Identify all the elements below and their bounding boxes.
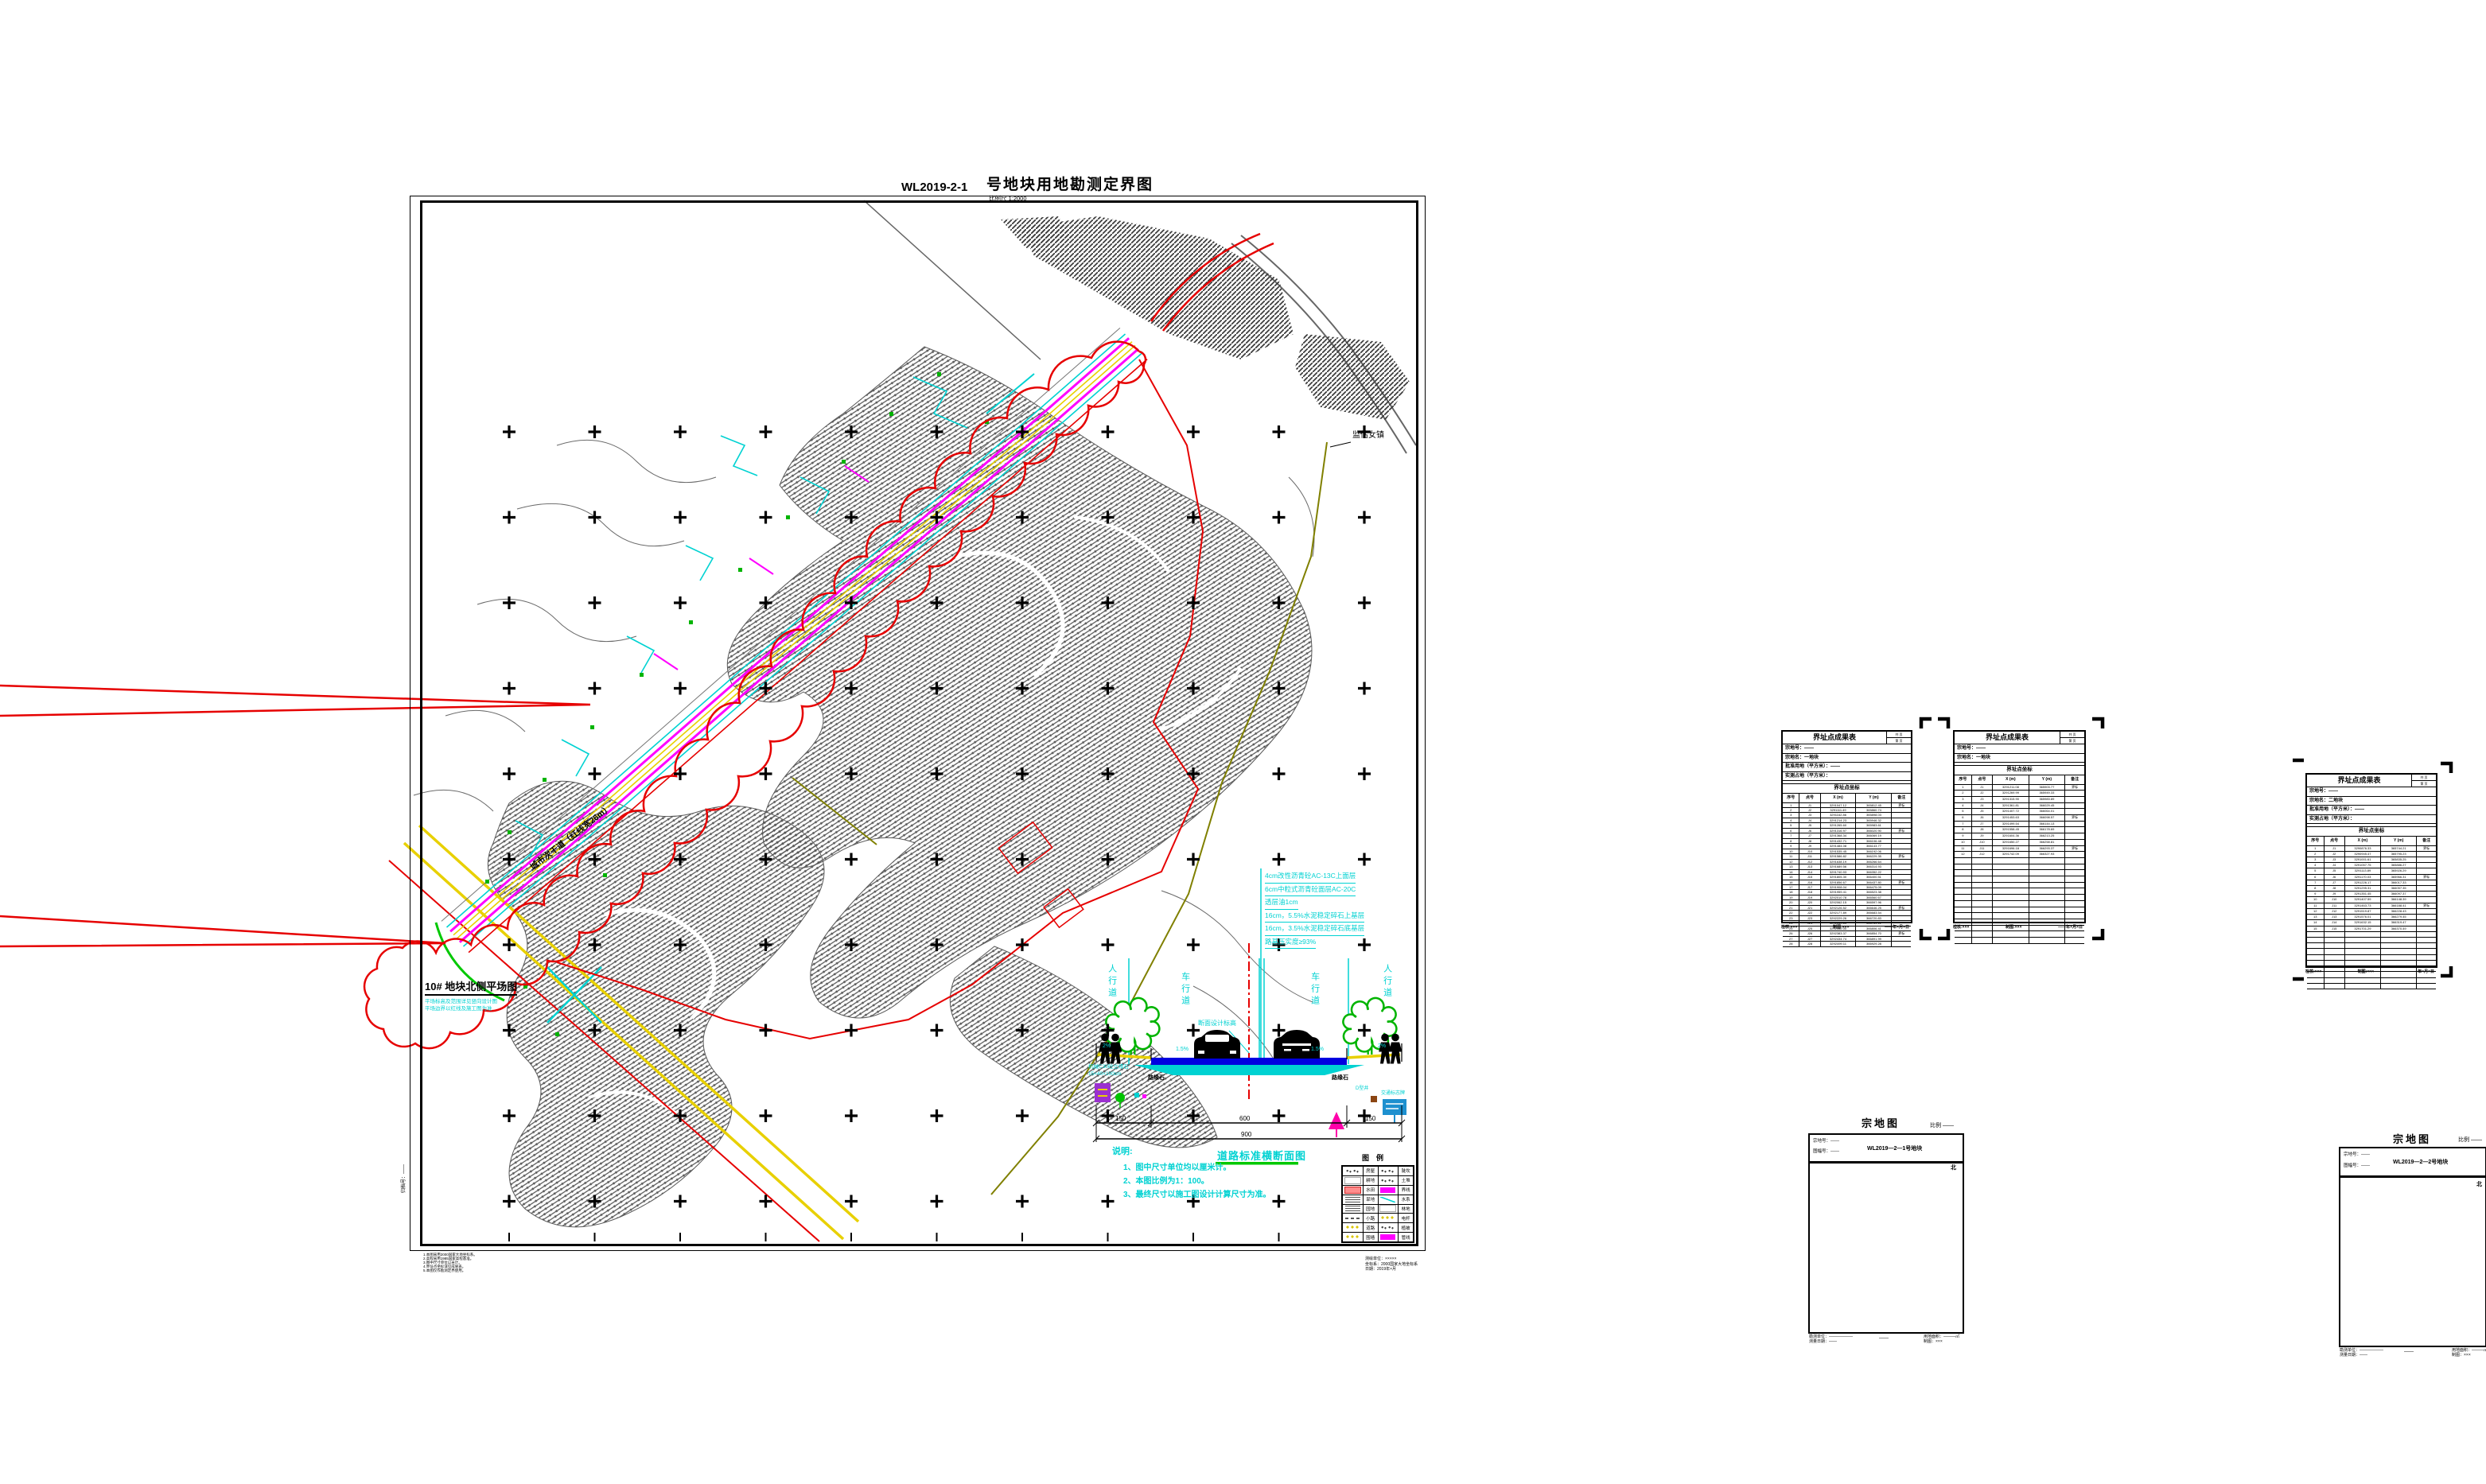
table-row <box>2307 984 2436 989</box>
legend-row: 房屋陡坎 <box>1343 1167 1413 1176</box>
table-row <box>1955 907 2084 914</box>
legend-swatch-white <box>1343 1176 1364 1185</box>
table-row: 15J153291701.29366370.49 <box>2307 927 2436 932</box>
table-row: 8J83291295.31366057.35 <box>2307 886 2436 892</box>
parcel1-footer-right: 用地面积：———㎡制图：××× <box>1924 1334 1959 1344</box>
table-row: 6J63291170.03365966.31界标 <box>2307 875 2436 880</box>
legend-swatch-dots <box>1379 1176 1399 1185</box>
table-info-row: 宗地号：—— <box>1783 744 1911 754</box>
slope-1: 2% <box>1103 1043 1111 1050</box>
curb-note-1: 机械C30砼立缘石 <box>1088 1064 1129 1070</box>
table-row <box>1955 883 2084 889</box>
parcel2-title: 宗地图 <box>2393 1134 2431 1146</box>
table-row <box>1955 858 2084 864</box>
dim-center: 600 <box>1239 1115 1250 1122</box>
legend-label: 旱地 <box>1364 1195 1379 1204</box>
boundary-table-2: 界址点成果表 共 页第 页宗地号：——宗地名：一地块界址点坐标序号点号X (m)… <box>1953 730 2086 923</box>
parcel2-frame: 宗地号：—— 图幅号：—— WL2019—2—2号地块 北 <box>2339 1147 2486 1347</box>
section-notes: 1、图中尺寸单位均以厘米计。2、本图比例为1：100。3、最终尺寸以施工图设计计… <box>1123 1161 1271 1202</box>
table-row: 9J93291351.45366097.37 <box>2307 892 2436 897</box>
plat-subline-2: 平场边界以红线及施工图为准 <box>425 1006 492 1012</box>
parcel2-scale: 比例 —— <box>2458 1137 2482 1144</box>
table-row <box>1955 895 2084 901</box>
legend-swatch-lines <box>1343 1195 1364 1204</box>
plat-subline-1: 平场标高及范围详见竖向设计图 <box>425 999 497 1004</box>
table-row <box>1955 876 2084 883</box>
parcel2-header: 宗地号：—— 图幅号：—— WL2019—2—2号地块 <box>2340 1148 2485 1178</box>
zone-lane-right: 车行道 <box>1309 972 1320 1008</box>
legend-swatch-white <box>1379 1205 1399 1214</box>
table-row <box>2307 978 2436 984</box>
table-row <box>1955 938 2084 944</box>
archive-note: 归档号：—— <box>402 1164 407 1193</box>
table-footer: 检核:×××制图:×××——年×月×日 <box>1953 924 2083 930</box>
legend-label: 房屋 <box>1364 1167 1379 1175</box>
legend-label: 园地 <box>1364 1205 1379 1214</box>
legend-title: 图 例 <box>1362 1154 1383 1162</box>
table-page-box: 共 页第 页 <box>2060 732 2084 744</box>
table-row: 1J13290876.33365744.21界标 <box>2307 846 2436 852</box>
table-row: 2J23291269.99365949.33 <box>1955 791 2084 797</box>
table-row: 9J93291604.36366213.25 <box>1955 833 2084 840</box>
table-row: 1J13291211.08365903.77界标 <box>1955 785 2084 791</box>
curb-label-right: 路缘石 <box>1332 1075 1348 1082</box>
pavement-layers: 4cm改性沥青砼AC-13C上面层 6cm中粒式沥青砼面层AC-20C 透层油1… <box>1265 870 1364 949</box>
table-row <box>1955 870 2084 876</box>
parcel1-frame: 宗地号：—— 图幅号：—— WL2019—2—1号地块 北 <box>1808 1133 1964 1334</box>
table-title: 界址点成果表 <box>1955 732 2060 744</box>
table-info-row: 批准用地（平方米）：—— <box>1783 763 1911 772</box>
table-row: 14J143291632.15366319.47 <box>2307 920 2436 926</box>
table-title: 界址点成果表 <box>1783 732 1886 744</box>
table-info-row: 实测占地（平方米）： <box>2307 815 2436 825</box>
curb-label-left: 路缘石 <box>1148 1075 1165 1082</box>
legend-label: 水田 <box>1364 1186 1379 1195</box>
legend-swatch-pink <box>1343 1186 1364 1195</box>
table-row: 11J113291696.18366293.37界标 <box>1955 846 2084 853</box>
table-row: 4J43291361.81366029.45 <box>1955 803 2084 810</box>
table-row <box>2307 932 2436 938</box>
legend-table: 房屋陡坎耕地土堆水田界线旱地水系园地林地小路电杆道路植被围墙管线 <box>1341 1165 1414 1243</box>
legend-swatch-ydots <box>1343 1233 1364 1241</box>
table-title: 界址点成果表 <box>2307 775 2411 787</box>
legend-swatch-dots <box>1379 1167 1399 1175</box>
table-info-row: 宗地号：—— <box>2307 787 2436 797</box>
parcel1-footer-left: 勘测单位：——————测量日期：—— <box>1809 1334 1853 1344</box>
sheet-subtitle: 比例尺 1:2000 <box>989 196 1027 203</box>
right-item-2: 交通标志牌 <box>1381 1091 1405 1097</box>
table-row <box>1955 913 2084 919</box>
legend-swatch-cyan <box>1379 1195 1399 1204</box>
table-row: 12J123291742.09366327.93 <box>1955 852 2084 858</box>
legend-label: 土堆 <box>1399 1176 1413 1185</box>
legend-swatch-dots <box>1379 1223 1399 1232</box>
parcel1-sheet-no: 图幅号：—— <box>1813 1149 1839 1154</box>
table-info-row: 宗地名：一地块 <box>1783 754 1911 763</box>
town-label: 监估女镇 <box>1352 431 1384 441</box>
boundary-table-1: 界址点成果表 共 页第 页宗地号：——宗地名：一地块批准用地（平方米）：——实测… <box>1781 730 1912 923</box>
legend-row: 耕地土堆 <box>1343 1176 1413 1186</box>
drawing-canvas: WL2019-2-1 号地块用地勘测定界图 比例尺 1:2000 归档号：—— … <box>0 0 2486 1484</box>
table-section-header: 界址点坐标 <box>1955 766 2084 775</box>
table-row: 10J103291650.27366258.81 <box>1955 840 2084 846</box>
parcel2-name: WL2019—2—2号地块 <box>2393 1160 2448 1166</box>
legend-swatch-dots <box>1343 1167 1364 1175</box>
table-row: 28J283292499.11366929.28 <box>1783 942 1911 946</box>
legend-label: 电杆 <box>1399 1214 1413 1222</box>
right-item-1: D型井 <box>1356 1086 1368 1092</box>
frame-bottom-left-notes: 1.本图采用2000国家大地坐标系。2.高程采用1985国家高程基准。 3.图中… <box>423 1253 477 1273</box>
legend-label: 植被 <box>1399 1223 1413 1232</box>
table-row: 10J103291407.59366148.39 <box>2307 897 2436 903</box>
table-row: 13J133291576.01366279.45 <box>2307 915 2436 920</box>
plat-area-label: 10# 地块北侧平场图 <box>425 981 517 996</box>
zone-lane-left: 车行道 <box>1180 972 1190 1008</box>
parcel1-footer-center: —— <box>1879 1336 1889 1342</box>
table-row: 7J73291226.17366017.33 <box>2307 880 2436 886</box>
parcel1-scale: 比例 —— <box>1930 1123 1954 1129</box>
legend-row: 小路电杆 <box>1343 1214 1413 1223</box>
table-row: 2J23290945.47365795.23 <box>2307 852 2436 857</box>
legend-label: 界线 <box>1399 1186 1413 1195</box>
legend-label: 小路 <box>1364 1214 1379 1222</box>
sheet-title: 号地块用地勘测定界图 <box>986 177 1154 194</box>
table-footer: 检核:×××制图:×××——年×月×日 <box>2305 969 2434 974</box>
table-section-header: 界址点坐标 <box>2307 827 2436 837</box>
sheet-doc-no: WL2019-2-1 <box>901 181 967 194</box>
legend-label: 耕地 <box>1364 1176 1379 1185</box>
table-row: 5J53291407.72366064.01 <box>1955 809 2084 815</box>
table-info-row: 宗地号：—— <box>1955 744 2084 754</box>
legend-label: 围墙 <box>1364 1233 1379 1241</box>
parcel1-header: 宗地号：—— 图幅号：—— WL2019—2—1号地块 <box>1810 1135 1963 1164</box>
parcel2-footer-center: —— <box>2404 1350 2414 1355</box>
legend-label: 水系 <box>1399 1195 1413 1204</box>
dim-total: 900 <box>1241 1131 1251 1138</box>
boundary-table-3: 界址点成果表 共 页第 页宗地号：——宗地名：二地块批准用地（平方米）：——实测… <box>2305 773 2437 968</box>
table-row: 3J33291315.90365983.89 <box>1955 797 2084 803</box>
zone-sidewalk-left: 人行道 <box>1107 964 1117 1000</box>
legend-swatch-ydots <box>1379 1214 1399 1222</box>
legend-swatch-mag <box>1379 1233 1399 1241</box>
slope-2: 1.5% <box>1176 1047 1189 1053</box>
parcel1-north-label: 北 <box>1951 1165 1956 1171</box>
table-row: 4J43291057.75365886.27 <box>2307 863 2436 868</box>
legend-swatch-dash <box>1343 1214 1364 1222</box>
dim-right: 150 <box>1365 1115 1375 1122</box>
table-row <box>1955 888 2084 895</box>
legend-label: 陡坎 <box>1399 1167 1413 1175</box>
legend-row: 水田界线 <box>1343 1186 1413 1195</box>
table-row: 8J83291558.45366178.69 <box>1955 827 2084 833</box>
table-row: 11J113291463.73366188.41界标 <box>2307 903 2436 909</box>
curb-note-2: 15×40×100cm <box>1088 1071 1122 1077</box>
zone-sidewalk-right: 人行道 <box>1382 964 1392 1000</box>
table-info-row: 宗地名：一地块 <box>1955 754 2084 763</box>
section-notes-title: 说明: <box>1112 1147 1133 1157</box>
legend-row: 园地林地 <box>1343 1205 1413 1214</box>
parcel2-north-label: 北 <box>2476 1182 2482 1188</box>
table-row <box>2307 961 2436 966</box>
table-footer: 检核:×××制图:×××——年×月×日 <box>1781 924 1909 930</box>
table-info-row: 实测占地（平方米）： <box>1783 772 1911 782</box>
legend-row: 旱地水系 <box>1343 1195 1413 1205</box>
table-row <box>1955 864 2084 871</box>
legend-label: 林地 <box>1399 1205 1413 1214</box>
table-row <box>2307 943 2436 949</box>
centerline-label: 断面设计标高 <box>1198 1020 1236 1027</box>
parcel1-name: WL2019—2—1号地块 <box>1867 1146 1922 1152</box>
parcel2-no: 宗地号：—— <box>2344 1152 2370 1157</box>
dim-left: 150 <box>1115 1115 1126 1122</box>
table-row: 7J73291499.54366144.13 <box>1955 822 2084 828</box>
table-info-row: 批准用地（平方米）：—— <box>2307 806 2436 815</box>
table-row: 5J53291113.89365926.29 <box>2307 868 2436 874</box>
slope-3: 1.5% <box>1311 1047 1324 1053</box>
table-row <box>2307 938 2436 943</box>
legend-label: 管线 <box>1399 1233 1413 1241</box>
parcel1-title: 宗地图 <box>1862 1118 1900 1130</box>
sheet-frame-inner <box>420 200 1418 1246</box>
table-info-row: 宗地名：二地块 <box>2307 797 2436 806</box>
legend-row: 围墙管线 <box>1343 1233 1413 1241</box>
legend-swatch-ydots <box>1343 1223 1364 1232</box>
table-row: 12J123291519.87366228.43 <box>2307 909 2436 915</box>
parcel2-sheet-no: 图幅号：—— <box>2344 1164 2370 1168</box>
parcel2-footer-right: 用地面积：———㎡制图：××× <box>2452 1348 2486 1358</box>
table-row <box>1955 901 2084 907</box>
legend-swatch-mag <box>1379 1186 1399 1195</box>
table-page-box: 共 页第 页 <box>1886 732 1911 744</box>
table-row: 3J33291001.61365835.25 <box>2307 857 2436 863</box>
table-column-header: 序号点号X (m)Y (m)备注 <box>1783 794 1911 803</box>
legend-row: 道路植被 <box>1343 1223 1413 1233</box>
table-row <box>2307 955 2436 961</box>
parcel2-footer-left: 勘测单位：——————测量日期：—— <box>2340 1348 2383 1358</box>
table-row: 6J63291453.63366098.57界标 <box>1955 815 2084 822</box>
table-page-box: 共 页第 页 <box>2411 775 2436 787</box>
table-column-header: 序号点号X (m)Y (m)备注 <box>2307 837 2436 846</box>
slope-4: 2% <box>1378 1043 1386 1050</box>
frame-bottom-right-notes: 测绘单位：×××××坐标系：2000国家大地坐标系 日期：2019年×月 <box>1365 1257 1418 1272</box>
legend-swatch-lines <box>1343 1205 1364 1214</box>
table-column-header: 序号点号X (m)Y (m)备注 <box>1955 775 2084 785</box>
table-section-header: 界址点坐标 <box>1783 784 1911 794</box>
table-row <box>2307 949 2436 954</box>
table-row <box>1955 931 2084 938</box>
parcel1-no: 宗地号：—— <box>1813 1139 1839 1144</box>
legend-label: 道路 <box>1364 1223 1379 1232</box>
